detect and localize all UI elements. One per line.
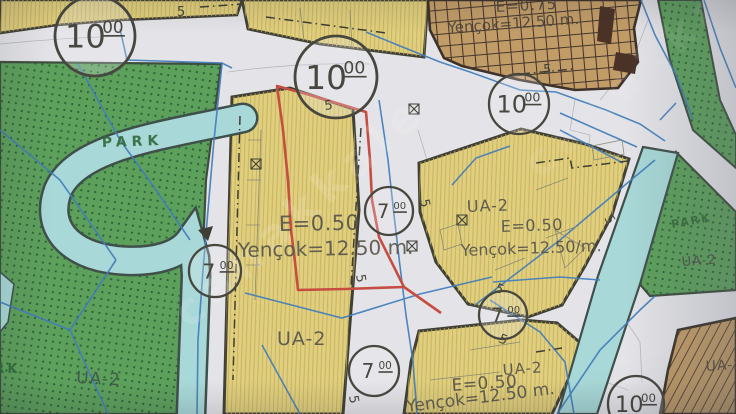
road-width-value: 7	[202, 259, 215, 283]
road-width-decimals: 00	[393, 201, 406, 212]
road-width-value: 7	[362, 359, 375, 383]
road-width-circle: 1000	[295, 36, 377, 118]
road-width-decimals: 00	[343, 59, 365, 79]
bottomright-ua2: UA-2	[705, 356, 736, 375]
center-block-e: E=0.50	[279, 211, 360, 236]
road-width-value: 7	[377, 200, 389, 223]
road-width-value: 10	[65, 18, 106, 56]
road-width-value: 10	[305, 59, 347, 97]
park-left-name: PARK	[102, 133, 164, 151]
road-width-circle: 700	[365, 187, 413, 235]
right-block-ua2: UA-2	[466, 196, 509, 216]
road-width-decimals: 00	[524, 90, 540, 105]
zoning-map-photo: canakkalecanakkale 100010001000700700700…	[0, 0, 736, 414]
road-width-value: 7	[491, 304, 503, 327]
road-width-circle: 1000	[489, 74, 549, 134]
park-left-name-2: PARK	[0, 362, 20, 377]
road-width-value: 10	[497, 91, 528, 119]
road-width-circle: 700	[349, 346, 399, 396]
road-width-value: 10	[615, 392, 644, 414]
road-width-decimals: 00	[102, 17, 123, 37]
road-width-decimals: 00	[379, 360, 392, 372]
park-right-ua2: UA-2	[681, 253, 717, 270]
right-block-e: E=0.50	[500, 215, 563, 236]
center-block-yencok: Yençok=12.50 m.	[237, 235, 414, 262]
road-width-decimals: 00	[507, 305, 520, 316]
road-width-circle: 1000	[55, 0, 135, 76]
center-block-ua2: UA-2	[277, 328, 326, 350]
road-width-tick-5: 5	[543, 63, 551, 78]
road-width-decimals: 00	[220, 259, 234, 272]
zoning-plan-canvas: canakkalecanakkale 100010001000700700700…	[0, 0, 736, 414]
park-left-ua2: UA-2	[76, 368, 122, 390]
road-width-tick-5: 5	[177, 5, 185, 20]
road-width-decimals: 00	[641, 391, 656, 405]
road-width-circle: 700	[189, 245, 241, 297]
